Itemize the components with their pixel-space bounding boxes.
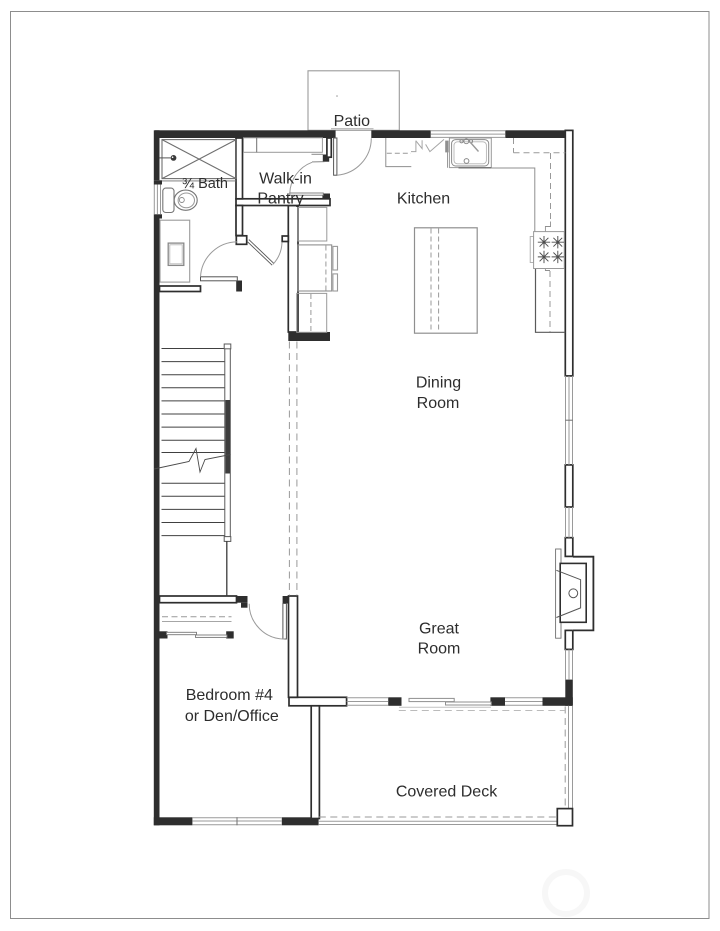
svg-text:or Den/Office: or Den/Office	[185, 708, 279, 725]
svg-text:Patio: Patio	[334, 113, 371, 130]
svg-text:Bedroom #4: Bedroom #4	[186, 687, 273, 704]
svg-text:Great: Great	[419, 621, 460, 638]
svg-text:Kitchen: Kitchen	[397, 191, 450, 208]
svg-text:Dining: Dining	[416, 375, 461, 392]
svg-text:Pantry: Pantry	[257, 191, 303, 208]
svg-text:Covered Deck: Covered Deck	[396, 784, 498, 801]
svg-text:¾ Bath: ¾ Bath	[182, 176, 228, 192]
svg-text:Walk-in: Walk-in	[259, 171, 312, 188]
svg-text:Room: Room	[418, 641, 461, 658]
svg-text:Room: Room	[417, 395, 460, 412]
